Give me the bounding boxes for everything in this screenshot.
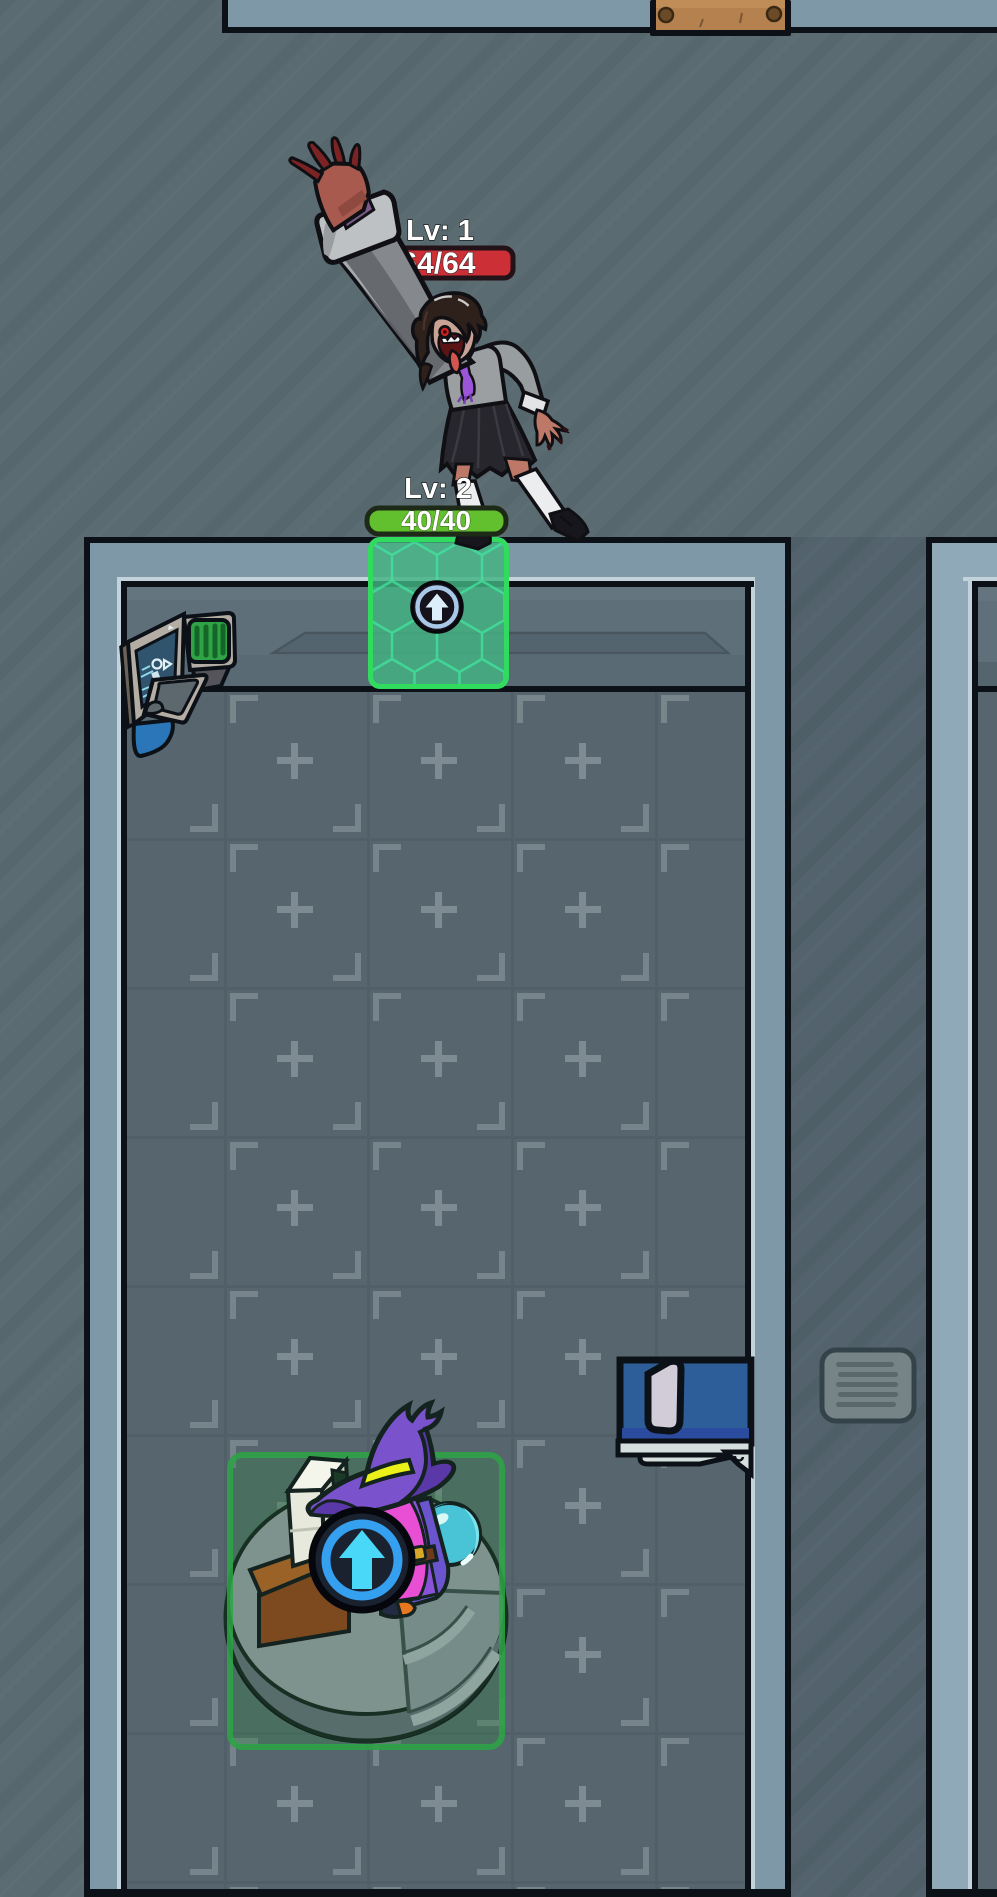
svg-text:Lv: 1: Lv: 1 [406,215,474,247]
svg-text:40/40: 40/40 [401,505,471,536]
svg-text:Lv: 2: Lv: 2 [404,473,472,505]
